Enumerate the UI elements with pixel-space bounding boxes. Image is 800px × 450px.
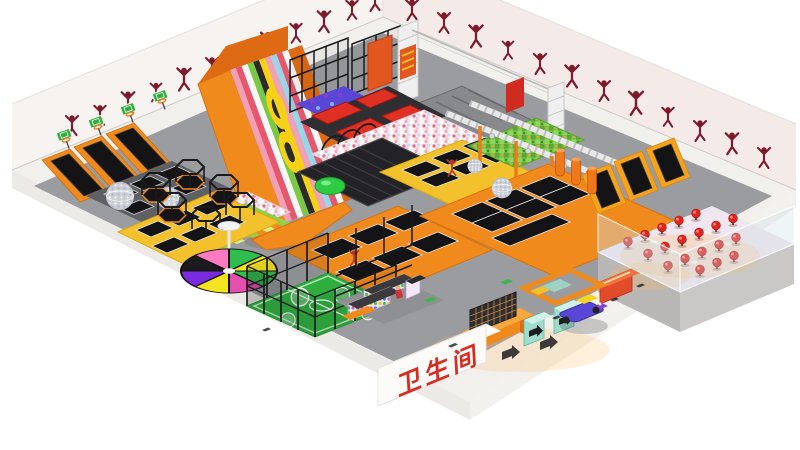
green-disc [315, 178, 345, 195]
pinwheel-canopy [218, 222, 240, 231]
mirror-ball [107, 183, 134, 210]
punching-bag [588, 167, 597, 195]
punching-bag [572, 158, 581, 186]
park-scene: 卫生间 [0, 0, 800, 450]
mirror-ball [492, 178, 512, 198]
mirror-ball [468, 159, 482, 173]
trampoline-park-render: 卫生间 [0, 0, 800, 450]
climbing-wall-panel [368, 35, 392, 91]
punching-bag [556, 149, 565, 177]
